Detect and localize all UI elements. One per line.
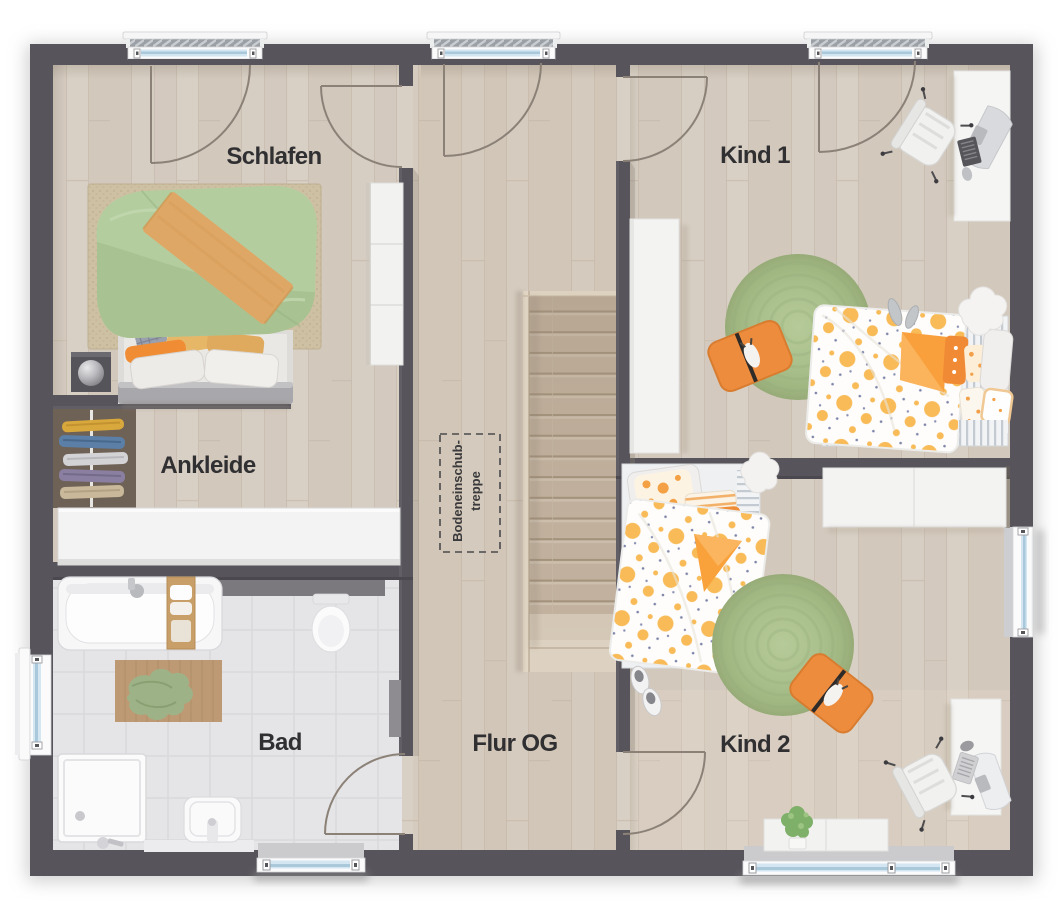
- svg-text:Bad: Bad: [258, 729, 302, 756]
- svg-text:treppe: treppe: [468, 471, 483, 511]
- svg-text:Kind 2: Kind 2: [720, 731, 790, 758]
- svg-text:Schlafen: Schlafen: [226, 143, 321, 170]
- svg-text:Bodeneinschub-: Bodeneinschub-: [450, 440, 465, 542]
- svg-text:Kind 1: Kind 1: [720, 142, 790, 169]
- svg-text:Ankleide: Ankleide: [160, 452, 255, 479]
- svg-text:Flur OG: Flur OG: [472, 730, 557, 757]
